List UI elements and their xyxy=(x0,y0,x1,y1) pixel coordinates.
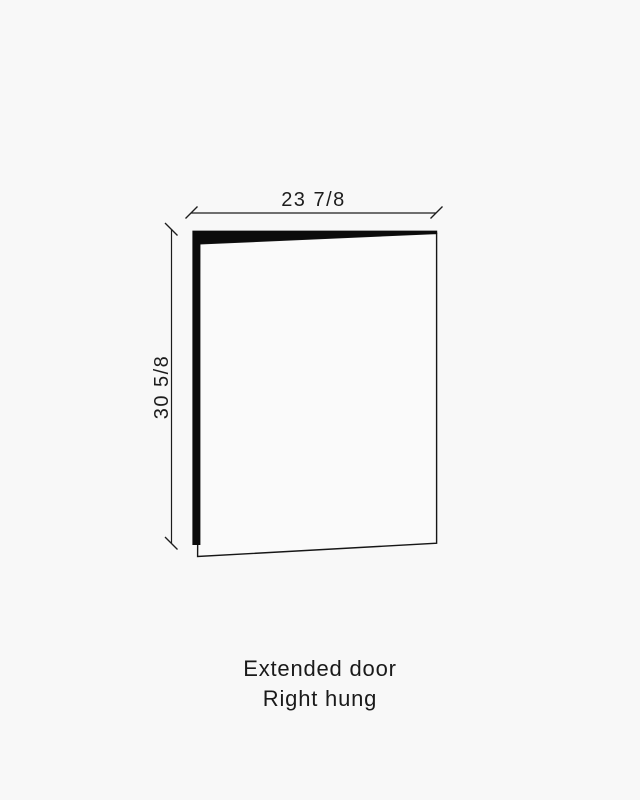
door-diagram-page: 23 7/8 30 5/8 Extended door Right hung xyxy=(0,0,640,800)
caption-line-1: Extended door xyxy=(0,654,640,684)
caption: Extended door Right hung xyxy=(0,654,640,714)
height-dimension-label: 30 5/8 xyxy=(151,355,173,420)
door-front-face xyxy=(198,233,437,556)
height-dimension: 30 5/8 xyxy=(151,223,178,550)
width-dimension-label: 23 7/8 xyxy=(281,189,346,211)
caption-line-2: Right hung xyxy=(0,684,640,714)
width-dimension: 23 7/8 xyxy=(186,189,443,219)
